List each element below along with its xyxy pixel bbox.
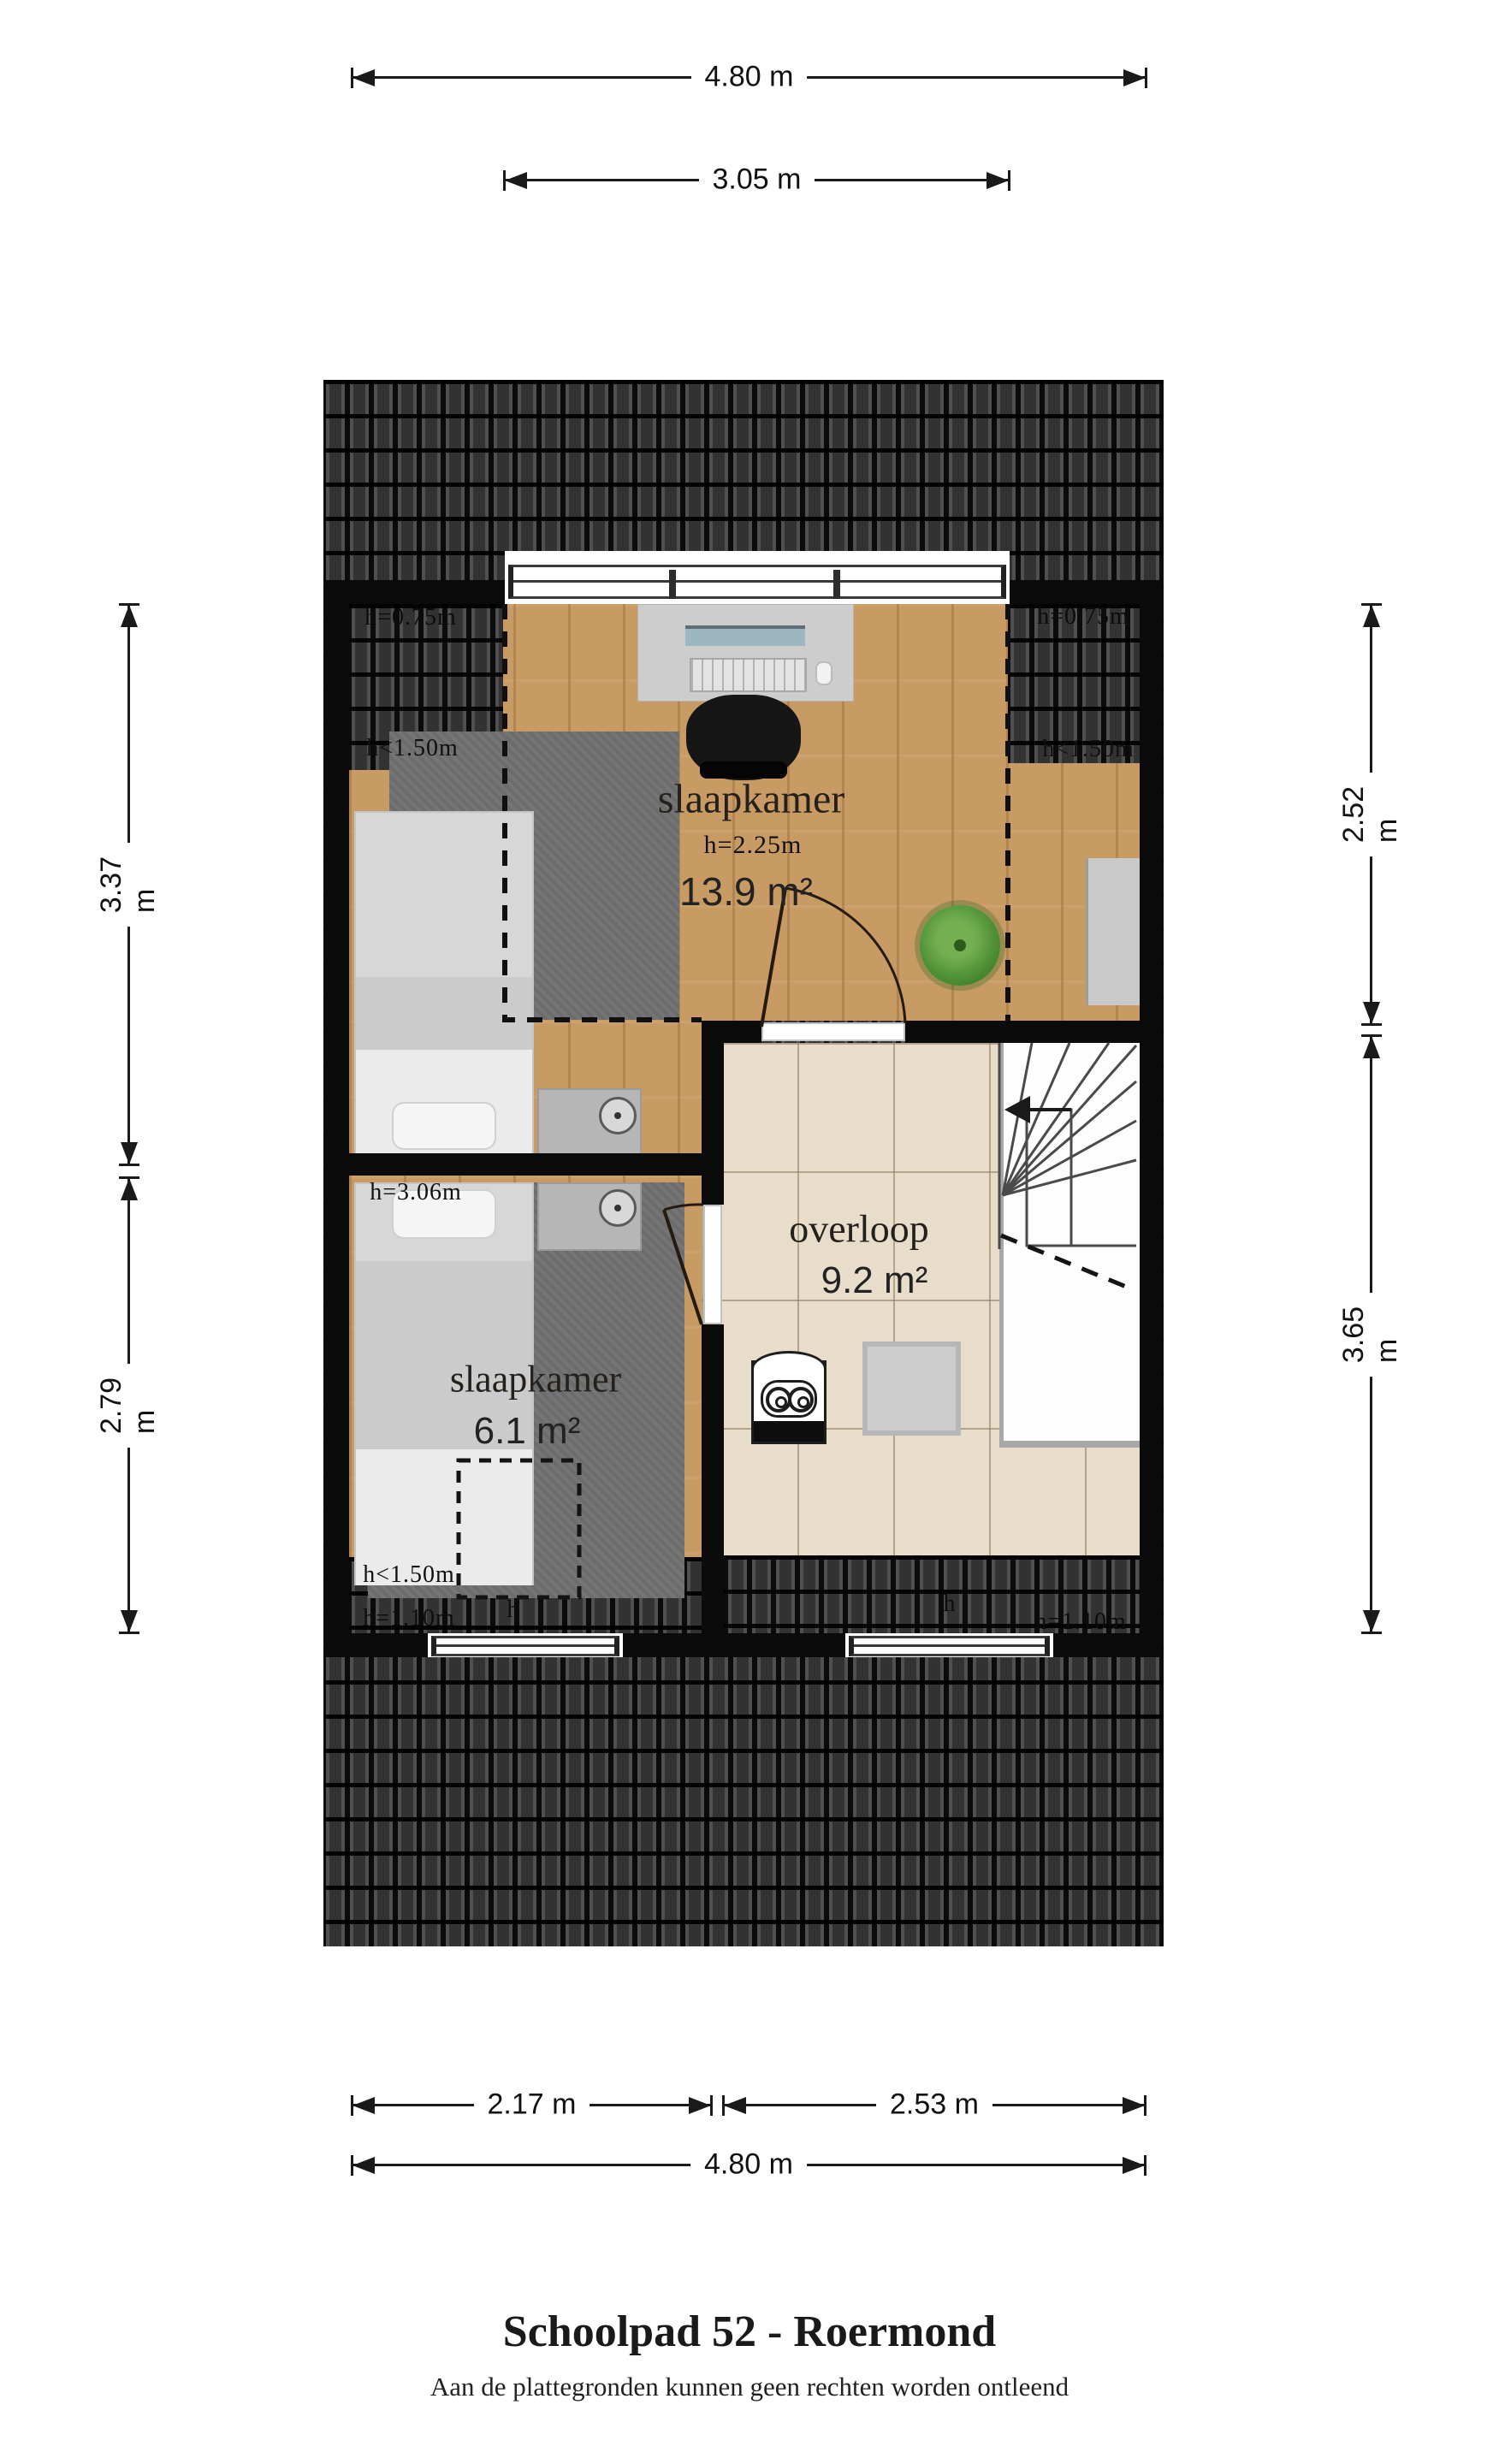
arrowhead-left-icon	[353, 69, 375, 86]
pillow	[392, 1102, 496, 1150]
arrowhead-down-icon	[1363, 1610, 1380, 1632]
dimension-label: 3.65 m	[1337, 1292, 1404, 1376]
height-label-window-left: h	[507, 1596, 520, 1624]
height-label-top-right: h=0.75m	[1037, 603, 1129, 631]
height-label-mid-left: h<1.50m	[366, 735, 459, 762]
washing-machine-icon	[751, 1360, 827, 1444]
disclaimer-text: Aan de plattegronden kunnen geen rechten…	[0, 2372, 1499, 2402]
room-area-bedroom-small: 6.1 m²	[474, 1410, 581, 1453]
arrowhead-right-icon	[1123, 2157, 1145, 2174]
arrowhead-down-icon	[1363, 1002, 1380, 1024]
wall-right	[1140, 580, 1162, 1657]
laptop-icon	[685, 625, 805, 646]
dimension-label: 2.79 m	[95, 1363, 162, 1447]
arrowhead-up-icon	[1363, 1036, 1380, 1058]
wall-bedroom-divider	[349, 1153, 702, 1176]
dimension-label: 2.53 m	[876, 2088, 992, 2122]
mouse-icon	[815, 661, 832, 685]
door-threshold	[761, 1022, 905, 1041]
wall-landing-lower	[702, 1324, 724, 1633]
arrowhead-left-icon	[505, 172, 527, 189]
window-bottom-left	[428, 1633, 623, 1657]
room-name-landing: overloop	[789, 1206, 929, 1252]
arrowhead-up-icon	[1363, 605, 1380, 627]
window-bottom-right	[845, 1633, 1053, 1657]
dormer-window-top	[505, 551, 1010, 604]
arrowhead-left-icon	[353, 2097, 375, 2114]
wall-landing-top	[905, 1021, 1140, 1043]
arrowhead-right-icon	[689, 2097, 711, 2114]
dimension-label: 4.80 m	[690, 2148, 807, 2182]
plant-icon	[920, 905, 1000, 986]
ceiling-height-bedroom-small: h=3.06m	[370, 1179, 462, 1206]
height-label-bottom-left: h=1.10m	[363, 1605, 455, 1632]
dresser	[1086, 858, 1142, 1005]
arrowhead-left-icon	[724, 2097, 746, 2114]
wall-landing-top	[724, 1021, 761, 1043]
arrowhead-right-icon	[1123, 2097, 1145, 2114]
height-label-top-left: h=0.75m	[364, 604, 457, 631]
desk	[637, 604, 854, 702]
wall-landing-upper	[702, 1021, 724, 1205]
ceiling-height-bedroom-large: h=2.25m	[704, 831, 803, 860]
room-area-landing: 9.2 m²	[821, 1259, 928, 1302]
dimension-label: 3.37 m	[95, 843, 162, 927]
dimension-label: 2.52 m	[1337, 773, 1404, 856]
arrowhead-down-icon	[121, 1142, 138, 1164]
hatch-mat	[862, 1342, 961, 1436]
arrowhead-down-icon	[121, 1610, 138, 1632]
arrowhead-up-icon	[121, 1178, 138, 1200]
dimension-label: 3.05 m	[699, 163, 815, 197]
stairwell	[999, 1043, 1140, 1448]
clock-icon	[599, 1189, 637, 1227]
arrowhead-left-icon	[353, 2157, 375, 2174]
height-label-mid-right: h<1.50m	[1042, 736, 1135, 763]
keyboard-icon	[690, 658, 807, 692]
page-title: Schoolpad 52 - Roermond	[0, 2307, 1499, 2357]
arrowhead-right-icon	[986, 172, 1009, 189]
arrowhead-up-icon	[121, 605, 138, 627]
height-label-bottom-right: h=1.10m	[1034, 1608, 1127, 1636]
height-label-low-left: h<1.50m	[363, 1561, 455, 1589]
wall-left	[325, 580, 349, 1657]
height-label-window-right: h	[944, 1590, 957, 1618]
dimension-label: 2.17 m	[474, 2088, 590, 2122]
clock-icon	[599, 1097, 637, 1134]
arrowhead-right-icon	[1123, 69, 1146, 86]
roof-plan-area: slaapkamer h=2.25m 13.9 m² overloop 9.2 …	[323, 380, 1164, 1946]
room-name-bedroom-large: slaapkamer	[658, 776, 845, 823]
dimension-label: 4.80 m	[691, 61, 808, 94]
door-threshold	[703, 1205, 722, 1324]
floorplan-page: 4.80 m 3.05 m 3.37 m 2.79 m 2.52 m 3.65 …	[0, 0, 1499, 2464]
room-name-bedroom-small: slaapkamer	[450, 1358, 621, 1401]
room-area-bedroom-large: 13.9 m²	[679, 868, 813, 915]
